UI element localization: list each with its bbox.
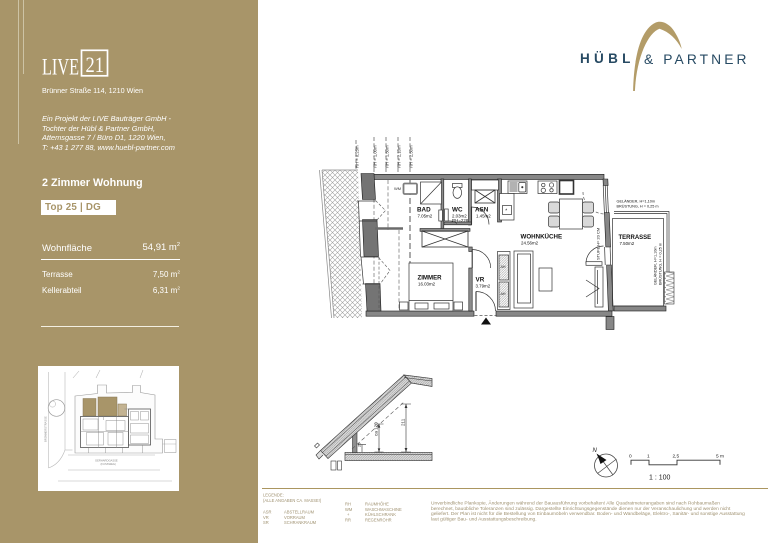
svg-text:Unverbindliche Plankopie, Än: Unverbindliche Plankopie, Änderungen wäh… xyxy=(431,500,720,507)
svg-text:RH = 2,10m: RH = 2,10m xyxy=(397,145,402,168)
svg-text:VR: VR xyxy=(263,515,269,520)
svg-text:VORRAUM: VORRAUM xyxy=(284,515,306,520)
svg-text:ZIMMER: ZIMMER xyxy=(418,275,443,282)
svg-text:RH=228: RH=228 xyxy=(452,218,469,223)
svg-text:REGENROHR: REGENROHR xyxy=(365,518,392,523)
svg-text:ABSTELLRAUM: ABSTELLRAUM xyxy=(284,510,315,515)
svg-text:VR: VR xyxy=(476,277,485,284)
svg-text:SR: SR xyxy=(263,520,269,525)
svg-text:BRÜNNERSTRASSE: BRÜNNERSTRASSE xyxy=(44,416,48,442)
svg-text:RH = 1,50m: RH = 1,50m xyxy=(385,145,390,168)
svg-text:2,5: 2,5 xyxy=(673,454,680,460)
svg-text:AH: AH xyxy=(501,292,506,296)
svg-text:berechnet, bauübliche Toleranz: berechnet, bauübliche Toleranzen sind zu… xyxy=(431,506,731,512)
svg-text:*: * xyxy=(505,208,507,214)
svg-text:RAUMHÖHE: RAUMHÖHE xyxy=(365,502,389,507)
svg-text:1 : 100: 1 : 100 xyxy=(649,475,671,482)
svg-text:7.05m2: 7.05m2 xyxy=(418,214,433,219)
svg-text:WOHNKÜCHE: WOHNKÜCHE xyxy=(521,234,563,241)
svg-text:RH = 1,00m: RH = 1,00m xyxy=(373,145,378,168)
svg-text:laut gültiger Bau- und Ausstat: laut gültiger Bau- und Ausstattungsbesch… xyxy=(431,516,537,522)
svg-text:RH = 0,25m: RH = 0,25m xyxy=(355,145,360,168)
svg-text:RH = 2,50m: RH = 2,50m xyxy=(409,145,414,168)
svg-text:0: 0 xyxy=(629,454,632,460)
svg-text:SCHRANKRAUM: SCHRANKRAUM xyxy=(284,520,317,525)
svg-text:24.56m2: 24.56m2 xyxy=(521,241,539,246)
svg-text:(FUSSWEG): (FUSSWEG) xyxy=(101,462,116,466)
svg-text:ASN: ASN xyxy=(475,207,489,214)
svg-text:BRÜSTUNG, H = 0,25 m: BRÜSTUNG, H = 0,25 m xyxy=(617,205,659,209)
svg-text:1: 1 xyxy=(647,454,650,460)
svg-text:STUFE H≈ 20 CM: STUFE H≈ 20 CM xyxy=(596,228,601,260)
svg-text:WC: WC xyxy=(452,207,463,214)
svg-text:+: + xyxy=(347,512,350,517)
svg-text:GERHARDGASSE: GERHARDGASSE xyxy=(95,459,118,463)
svg-text:RR: RR xyxy=(345,518,351,523)
svg-text:ca 120: ca 120 xyxy=(373,422,378,436)
svg-text:WM: WM xyxy=(394,186,401,191)
svg-text:211: 211 xyxy=(400,418,405,426)
svg-text:WASCHMASCHINE: WASCHMASCHINE xyxy=(365,507,402,512)
svg-text:5 m: 5 m xyxy=(716,454,724,460)
svg-text:1.45m2: 1.45m2 xyxy=(476,214,491,219)
svg-text:(ALLE ANGABEN CA. MASSE!): (ALLE ANGABEN CA. MASSE!) xyxy=(263,498,322,503)
svg-text:BRÜSTUNG, H = 0,25 m: BRÜSTUNG, H = 0,25 m xyxy=(659,243,663,285)
svg-text:AH: AH xyxy=(501,265,506,269)
svg-text:7.50m2: 7.50m2 xyxy=(620,241,635,246)
svg-text:geliefert. Der Plan ist nicht: geliefert. Der Plan ist nicht für die Be… xyxy=(431,511,745,517)
svg-text:25: 25 xyxy=(358,443,362,447)
svg-text:KÜHLSCHRANK: KÜHLSCHRANK xyxy=(365,512,396,517)
svg-text:3.79m2: 3.79m2 xyxy=(476,284,491,289)
svg-text:GELÄNDER, H=1,10m: GELÄNDER, H=1,10m xyxy=(617,200,656,204)
svg-text:GELÄNDER, H=1,10m: GELÄNDER, H=1,10m xyxy=(654,246,658,285)
svg-text:16.03m2: 16.03m2 xyxy=(418,282,436,287)
svg-text:LEGENDE:: LEGENDE: xyxy=(263,493,284,498)
svg-text:BAD: BAD xyxy=(417,207,431,214)
svg-text:N: N xyxy=(593,448,598,454)
svg-text:WM: WM xyxy=(345,507,353,512)
svg-text:RH: RH xyxy=(345,502,351,507)
svg-text:ASR: ASR xyxy=(263,510,271,515)
